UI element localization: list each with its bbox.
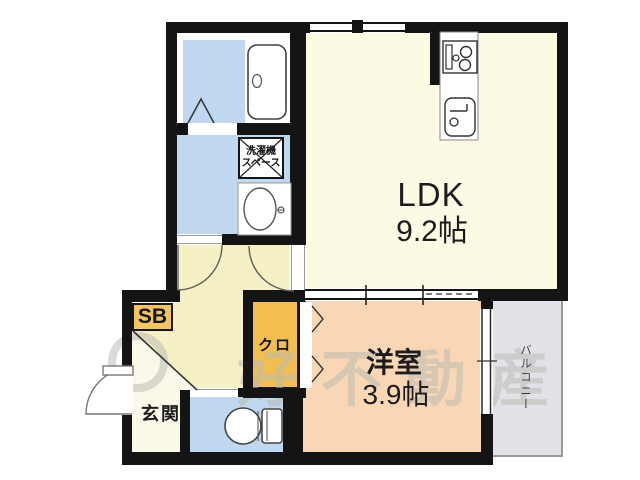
kitchen-unit xyxy=(440,32,478,140)
wall-segment xyxy=(238,388,283,397)
wall-segment xyxy=(237,123,291,135)
floor-plan: SB クロ 洗濯機 スペース 好不動産 xyxy=(0,0,640,480)
wall-segment xyxy=(290,33,306,245)
laundry-cross-icon xyxy=(239,138,283,178)
plan-structure xyxy=(0,0,640,480)
bathroom-fixtures xyxy=(188,45,286,123)
wall-segment xyxy=(430,33,440,85)
entrance-door-leaf xyxy=(103,366,133,375)
kitchen-sink-icon xyxy=(445,98,475,136)
wall-segment xyxy=(481,290,493,312)
bath-folding-door-icon xyxy=(188,99,214,123)
stove-icon xyxy=(443,41,477,73)
wall-segment xyxy=(180,390,190,452)
balcony-window xyxy=(477,309,497,414)
wall-segment xyxy=(166,22,312,33)
wall-segment xyxy=(557,22,568,301)
washbasin-icon xyxy=(238,183,291,235)
toilet-icon xyxy=(225,408,282,444)
wall-segment xyxy=(122,452,493,465)
wall-segment xyxy=(122,290,132,368)
closet-folding-door-icon xyxy=(312,306,323,382)
wall-segment xyxy=(166,22,177,302)
washroom-door-arc xyxy=(177,245,222,290)
ldk-top-window xyxy=(308,20,405,33)
wall-segment xyxy=(481,413,493,452)
wall-segment xyxy=(283,388,303,452)
wall-segment xyxy=(243,290,253,397)
ldk-western-partition-window xyxy=(305,285,478,305)
bathtub-icon xyxy=(248,45,286,119)
wall-segment xyxy=(222,234,291,245)
wall-segment xyxy=(403,22,568,33)
door-openings xyxy=(121,123,306,415)
bathroom-door-opening xyxy=(188,123,237,135)
ldk-door-opening xyxy=(290,245,306,290)
ldk-door-arc xyxy=(249,246,294,291)
wall-segment xyxy=(177,123,188,135)
entrance-hall-divider xyxy=(133,331,197,390)
